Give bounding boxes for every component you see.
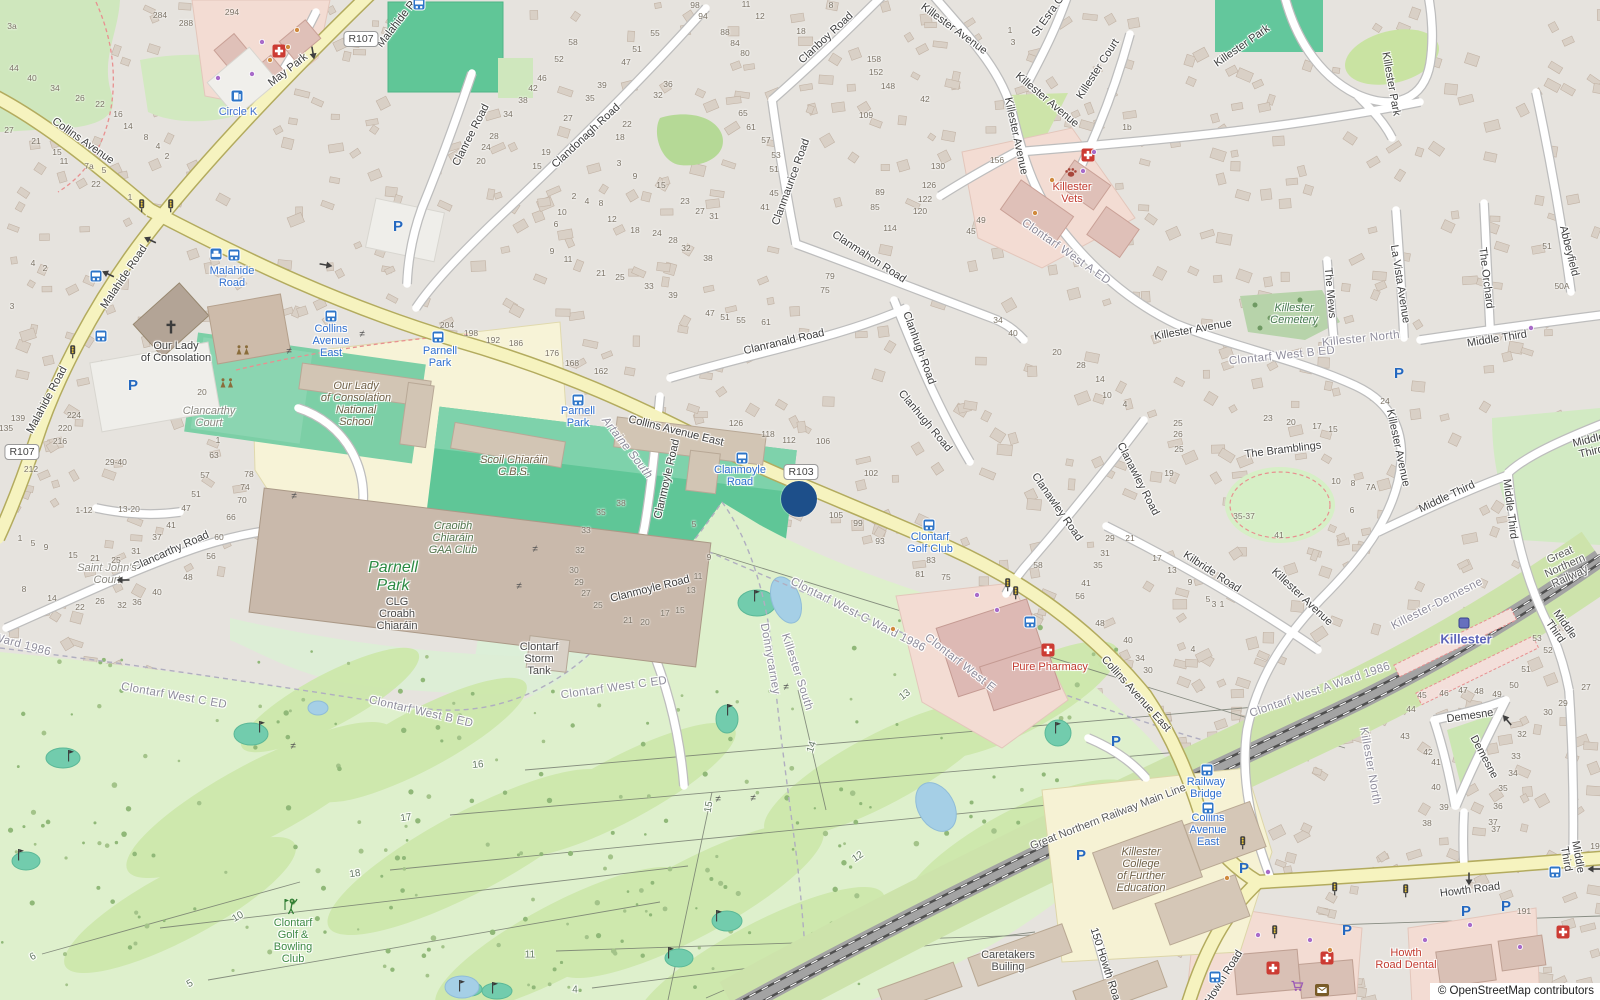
house-number: 198 [464, 328, 478, 338]
house-number: 32 [117, 600, 126, 610]
golf-hole-number: 16 [472, 759, 484, 771]
house-number: 99 [853, 518, 862, 528]
house-number: 32 [681, 243, 690, 253]
road-label-clanboy-road: Clanboy Road [796, 10, 855, 66]
house-number: 42 [920, 94, 929, 104]
house-number: 41 [1431, 757, 1440, 767]
road-label-clanawley-road: Clanawley Road [1114, 441, 1161, 518]
house-number: 29-40 [105, 457, 127, 467]
traffic-icon [1239, 836, 1247, 851]
road-label-killester-avenue: Killester Avenue [1384, 408, 1412, 487]
dotp-icon [974, 592, 981, 599]
flag-icon [491, 982, 499, 995]
house-number: 44 [1406, 704, 1415, 714]
playground-icon [219, 378, 235, 389]
house-number: 15 [68, 550, 77, 560]
road-label-malahide-road: Malahide Road [24, 365, 69, 436]
house-number: 21 [90, 553, 99, 563]
house-number: 50A [1554, 281, 1569, 291]
house-number: 28 [1076, 360, 1085, 370]
house-number: 79 [825, 271, 834, 281]
house-number: 49 [1492, 689, 1501, 699]
house-number: 33 [581, 525, 590, 535]
route-badge-r107: R107 [343, 31, 378, 47]
house-number: 31 [1100, 548, 1109, 558]
traffic-icon [1402, 884, 1410, 899]
map-marker[interactable] [781, 481, 817, 517]
house-number: 31 [709, 211, 718, 221]
ward-label-clontarf-west-c-ed: Clontarf West C ED [120, 681, 228, 711]
place-label-parnell-park: Parnell Park [368, 559, 418, 595]
dotp-icon [1422, 937, 1429, 944]
route-badge-r103: R103 [783, 464, 818, 480]
house-number: 5 [31, 538, 36, 548]
traffic-icon [167, 199, 175, 214]
map-attribution[interactable]: © OpenStreetMap contributors [1430, 983, 1600, 1000]
house-number: 66 [226, 512, 235, 522]
traffic-icon [1271, 925, 1279, 940]
house-number: 220 [58, 423, 72, 433]
house-number: 216 [53, 436, 67, 446]
road-label-150-howth-road: 150 Howth Road [1088, 926, 1125, 1000]
house-number: 18 [796, 26, 805, 36]
gate-icon: ≠ [286, 342, 292, 358]
house-number: 3 [1212, 599, 1217, 609]
flag-icon [458, 980, 466, 993]
house-number: 139 [11, 413, 25, 423]
station-icon [1459, 618, 1470, 629]
house-number: 43 [1400, 731, 1409, 741]
house-number: 29 [1558, 698, 1567, 708]
road-label-demesne: Demesne [1446, 707, 1494, 725]
dotp-icon [1091, 149, 1098, 156]
ward-label-killester-demesne: Killester-Demesne [1389, 576, 1484, 632]
house-number: 36 [132, 597, 141, 607]
parking-icon: P [1076, 848, 1086, 864]
map-canvas[interactable]: Collins AvenueMalahide RoadMalahide Road… [0, 0, 1600, 1000]
house-number: 55 [650, 28, 659, 38]
bus-icon [1201, 764, 1214, 777]
house-number: 20 [640, 617, 649, 627]
house-number: 135 [0, 423, 13, 433]
house-number: 34 [50, 83, 59, 93]
house-number: 34 [503, 109, 512, 119]
house-number: 106 [816, 436, 830, 446]
house-number: 27 [4, 125, 13, 135]
house-number: 13-20 [118, 504, 140, 514]
house-number: 42 [1423, 747, 1432, 757]
house-number: 41 [1081, 578, 1090, 588]
golf-hole-number: 17 [400, 812, 413, 824]
house-number: 81 [915, 569, 924, 579]
transit-label-malahide-road: Malahide Road [210, 265, 255, 289]
house-number: 10 [557, 207, 566, 217]
transit-label-railway-bridge: Railway Bridge [1187, 776, 1226, 800]
house-number: 45 [966, 226, 975, 236]
house-number: 26 [1173, 429, 1182, 439]
house-number: 186 [509, 338, 523, 348]
dotp-icon [1255, 932, 1262, 939]
ward-label-killester-south: Killester South [779, 632, 815, 712]
house-number: 55 [736, 315, 745, 325]
place-label-pure-pharmacy: Pure Pharmacy [1012, 661, 1088, 673]
place-label-killester-college-of-further-edu: Killester College of Further Education [1117, 846, 1166, 894]
house-number: 294 [225, 7, 239, 17]
house-number: 52 [1543, 645, 1552, 655]
house-number: 102 [864, 468, 878, 478]
house-number: 122 [918, 194, 932, 204]
flag-icon [17, 849, 25, 862]
house-number: 152 [869, 67, 883, 77]
transit-label-parnell-park: Parnell Park [423, 345, 457, 369]
road-label-killester-avenue: Killester Avenue [1269, 566, 1335, 628]
house-number: 15 [1328, 424, 1337, 434]
house-number: 30 [1543, 707, 1552, 717]
house-number: 35-37 [1233, 511, 1255, 521]
road-label-may-park: May Park [266, 51, 310, 89]
place-label-circle-k: Circle K [219, 106, 258, 118]
road-label-malahide-road: Malahide Road [98, 243, 149, 311]
house-number: 39 [668, 290, 677, 300]
house-number: 24 [481, 142, 490, 152]
house-number: 42 [528, 83, 537, 93]
house-number: 47 [1458, 685, 1467, 695]
house-number: 19 [541, 147, 550, 157]
house-number: 27 [563, 113, 572, 123]
golf-hole-number: 12 [850, 849, 865, 864]
road-label-clanawley-road: Clanawley Road [1029, 471, 1085, 544]
gate-icon: ≠ [783, 678, 789, 694]
arrow-icon [99, 267, 116, 281]
house-number: 51 [191, 489, 200, 499]
house-number: 4 [31, 258, 36, 268]
house-number: 32 [575, 545, 584, 555]
road-label-great-northern-railway: Great Northern Railway [1538, 541, 1592, 591]
house-number: 24 [1380, 396, 1389, 406]
traffic-icon [138, 199, 146, 214]
house-number: 204 [440, 320, 454, 330]
house-number: 105 [829, 510, 843, 520]
house-number: 7a [84, 161, 93, 171]
house-number: 44 [9, 63, 18, 73]
house-number: 60 [214, 532, 223, 542]
house-number: 41 [1274, 530, 1283, 540]
house-number: 26 [95, 596, 104, 606]
house-number: 11 [60, 156, 69, 166]
road-label-demesne: Demesne [1468, 733, 1501, 780]
house-number: 24 [652, 228, 661, 238]
gate-icon: ≠ [532, 540, 538, 556]
house-number: 23 [680, 196, 689, 206]
golf-hole-number: 14 [805, 740, 819, 754]
road-label-collins-avenue: Collins Avenue [50, 115, 116, 166]
house-number: 33 [1511, 751, 1520, 761]
route-badge-r107: R107 [4, 444, 39, 460]
transit-label-collins-avenue-east: Collins Avenue East [1189, 812, 1226, 848]
bus-icon [432, 331, 445, 344]
ward-label-donnycarney: Donnycarney [758, 622, 782, 695]
house-number: 22 [622, 119, 631, 129]
house-number: 17 [660, 608, 669, 618]
road-label-the-bramblings: The Bramblings [1244, 439, 1322, 460]
bus-icon [736, 452, 749, 465]
road-label-howth-road: Howth Road [1439, 880, 1501, 899]
pharmacy-icon [1042, 644, 1055, 657]
bus-icon [325, 310, 338, 323]
parking-icon: P [1239, 861, 1249, 877]
golfer-icon [281, 898, 299, 916]
road-label-clanhugh-road: Clanhugh Road [900, 310, 937, 386]
house-number: 52 [554, 54, 563, 64]
house-number: 47 [705, 308, 714, 318]
house-number: 35 [596, 507, 605, 517]
house-number: 14 [123, 121, 132, 131]
house-number: 9 [1188, 577, 1193, 587]
house-number: 25 [1174, 444, 1183, 454]
house-number: 83 [926, 555, 935, 565]
pharmacy-icon [1082, 149, 1095, 162]
house-number: 14 [47, 593, 56, 603]
house-number: 25 [615, 272, 624, 282]
house-number: 11 [694, 571, 703, 581]
house-number: 36 [663, 79, 672, 89]
house-number: 85 [870, 202, 879, 212]
house-number: 30 [1143, 665, 1152, 675]
place-label-killester-cemetery: Killester Cemetery [1270, 302, 1318, 326]
house-number: 84 [730, 38, 739, 48]
house-number: 12 [607, 214, 616, 224]
house-number: 11 [564, 254, 573, 264]
place-label-clg-croabh-chiar-in: CLG Croabh Chiaráin [377, 596, 418, 632]
taxi-icon [210, 248, 223, 261]
golf-hole-number: 11 [525, 950, 535, 961]
house-number: 98 [690, 0, 699, 10]
dotp-icon [215, 75, 222, 82]
house-number: 40 [1431, 782, 1440, 792]
house-number: 20 [197, 387, 206, 397]
parking-icon: P [1342, 923, 1352, 939]
doto-icon [1327, 947, 1334, 954]
house-number: 50 [1509, 680, 1518, 690]
doto-icon [267, 57, 274, 64]
house-number: 39 [597, 80, 606, 90]
house-number: 94 [698, 11, 707, 21]
house-number: 40 [1008, 328, 1017, 338]
parking-icon: P [1111, 734, 1121, 750]
ward-label-clontarf-west-c-ward-1986: Clontarf West C Ward 1986 [788, 576, 927, 655]
house-number: 22 [75, 602, 84, 612]
house-number: 39 [1439, 802, 1448, 812]
house-number: 28 [489, 131, 498, 141]
house-number: 22 [95, 99, 104, 109]
house-number: 40 [27, 73, 36, 83]
playground-icon [235, 345, 251, 356]
house-number: 19 [1164, 468, 1173, 478]
parking-icon: P [393, 219, 403, 235]
road-label-middle-third: Middle Third [1500, 478, 1519, 539]
house-number: 51 [769, 164, 778, 174]
house-number: 29 [574, 577, 583, 587]
house-number: 49 [976, 215, 985, 225]
house-number: 56 [1075, 591, 1084, 601]
house-number: 15 [675, 605, 684, 615]
house-number: 38 [703, 253, 712, 263]
fuel-icon [231, 90, 244, 103]
house-number: 53 [1532, 633, 1541, 643]
house-number: 6 [1350, 505, 1355, 515]
place-label-killester-vets: Killester Vets [1052, 181, 1091, 205]
road-label-collins-avenue-east: Collins Avenue East [1099, 654, 1173, 735]
house-number: 20 [1052, 347, 1061, 357]
dotp-icon [1080, 168, 1087, 175]
arrow-icon [307, 45, 318, 61]
golf-hole-number: 15 [703, 801, 716, 814]
house-number: 12 [755, 11, 764, 21]
place-label-clancarthy-court: Clancarthy Court [183, 405, 236, 429]
house-number: 28 [668, 235, 677, 245]
road-label-middle-third: Middle Third [1466, 328, 1527, 349]
house-number: 1 [18, 533, 23, 543]
house-number: 19 [1590, 841, 1599, 851]
house-number: 191 [1517, 906, 1531, 916]
road-label-clanree-road: Clanree Road [450, 102, 492, 168]
house-number: 21 [1125, 533, 1134, 543]
golf-hole-number: 18 [349, 868, 362, 880]
house-number: 1b [1122, 122, 1131, 132]
house-number: 45 [1417, 690, 1426, 700]
gate-icon: ≠ [715, 790, 721, 806]
bus-icon [923, 519, 936, 532]
house-number: 4 [1123, 399, 1128, 409]
arrow-icon [318, 259, 334, 270]
house-number: 32 [653, 90, 662, 100]
house-number: 120 [913, 206, 927, 216]
golf-hole-number: 10 [230, 909, 245, 924]
flag-icon [726, 704, 734, 717]
house-number: 158 [867, 54, 881, 64]
transit-label-clontarf-golf-club: Clontarf Golf Club [907, 531, 953, 555]
house-number: 1 [1220, 599, 1225, 609]
pharmacy-icon [1267, 962, 1280, 975]
house-number: 27 [581, 588, 590, 598]
house-number: 57 [761, 135, 770, 145]
traffic-icon [1004, 578, 1012, 593]
house-number: 37 [152, 532, 161, 542]
flag-icon [258, 721, 266, 734]
bus-icon [572, 394, 585, 407]
house-number: 2 [572, 191, 577, 201]
house-number: 5 [692, 519, 697, 529]
gate-icon: ≠ [750, 789, 756, 805]
flag-icon [715, 910, 723, 923]
house-number: 47 [181, 503, 190, 513]
dotp-icon [1467, 922, 1474, 929]
house-number: 22 [91, 179, 100, 189]
house-number: 89 [875, 187, 884, 197]
cart-icon [1291, 980, 1304, 992]
gate-icon: ≠ [359, 325, 365, 341]
house-number: 126 [729, 418, 743, 428]
house-number: 8 [599, 198, 604, 208]
arrow-icon [1587, 865, 1600, 874]
road-label-kilbride-road: Kilbride Road [1181, 549, 1243, 595]
house-number: 156 [990, 155, 1004, 165]
house-number: 34 [1508, 768, 1517, 778]
road-label-collins-avenue-east: Collins Avenue East [627, 413, 725, 448]
pharmacy-icon [273, 45, 286, 58]
dotp-icon [1528, 325, 1535, 332]
house-number: 1 [216, 435, 221, 445]
house-number: 13 [686, 585, 695, 595]
gate-icon: ≠ [291, 487, 297, 503]
house-number: 192 [486, 335, 500, 345]
transit-label-parnell-park: Parnell Park [561, 405, 595, 429]
house-number: 14 [1095, 374, 1104, 384]
transit-label-clanmoyle-road: Clanmoyle Road [714, 464, 766, 488]
house-number: 21 [31, 136, 40, 146]
house-number: 15 [52, 147, 61, 157]
house-number: 224 [67, 410, 81, 420]
house-number: 70 [237, 495, 246, 505]
road-label-clanmaurice-road: Clanmaurice Road [770, 137, 812, 227]
house-number: 29 [1105, 533, 1114, 543]
house-number: 112 [782, 435, 796, 445]
house-number: 75 [820, 285, 829, 295]
house-number: 2 [165, 151, 170, 161]
house-number: 88 [720, 27, 729, 37]
house-number: 3 [617, 158, 622, 168]
road-label-killester-avenue: Killester Avenue [1002, 96, 1030, 175]
house-number: 34 [993, 315, 1002, 325]
house-number: 2 [43, 263, 48, 273]
house-number: 51 [720, 312, 729, 322]
ward-label-killester-north: Killester North [1321, 329, 1400, 349]
place-label-our-lady-of-consolation-national: Our Lady of Consolation National School [321, 380, 391, 428]
house-number: 35 [1093, 560, 1102, 570]
arrow-icon [141, 233, 158, 247]
house-number: 15 [656, 180, 665, 190]
house-number: 7A [1366, 482, 1376, 492]
place-label-clontarf-golf-bowling-club: Clontarf Golf & Bowling Club [274, 917, 313, 965]
house-number: 46 [1439, 688, 1448, 698]
road-label-killester-avenue: Killester Avenue [1013, 70, 1081, 130]
house-number: 57 [200, 470, 209, 480]
traffic-icon [1331, 882, 1339, 897]
dotp-icon [259, 39, 266, 46]
house-number: 212 [24, 464, 38, 474]
gate-icon: ≠ [516, 577, 522, 593]
house-number: 48 [1095, 618, 1104, 628]
dotp-icon [1265, 869, 1272, 876]
house-number: 74 [240, 482, 249, 492]
place-label-killester: Killester [1440, 632, 1491, 647]
house-number: 8 [144, 132, 149, 142]
road-label-la-vista-avenue: La Vista Avenue [1388, 244, 1412, 324]
house-number: 32 [1517, 729, 1526, 739]
house-number: 9 [550, 246, 555, 256]
house-number: 20 [1286, 417, 1295, 427]
transit-label-collins-avenue-east: Collins Avenue East [312, 323, 349, 359]
house-number: 4 [1191, 644, 1196, 654]
road-label-clanmoyle-road: Clanmoyle Road [609, 573, 691, 604]
house-number: 34 [1135, 653, 1144, 663]
house-number: 53 [771, 150, 780, 160]
house-number: 40 [1123, 635, 1132, 645]
bus-icon [228, 249, 241, 262]
road-label-st-esra-g: St Esra G [1029, 0, 1066, 39]
house-number: 27 [1581, 682, 1590, 692]
house-number: 5 [102, 165, 107, 175]
